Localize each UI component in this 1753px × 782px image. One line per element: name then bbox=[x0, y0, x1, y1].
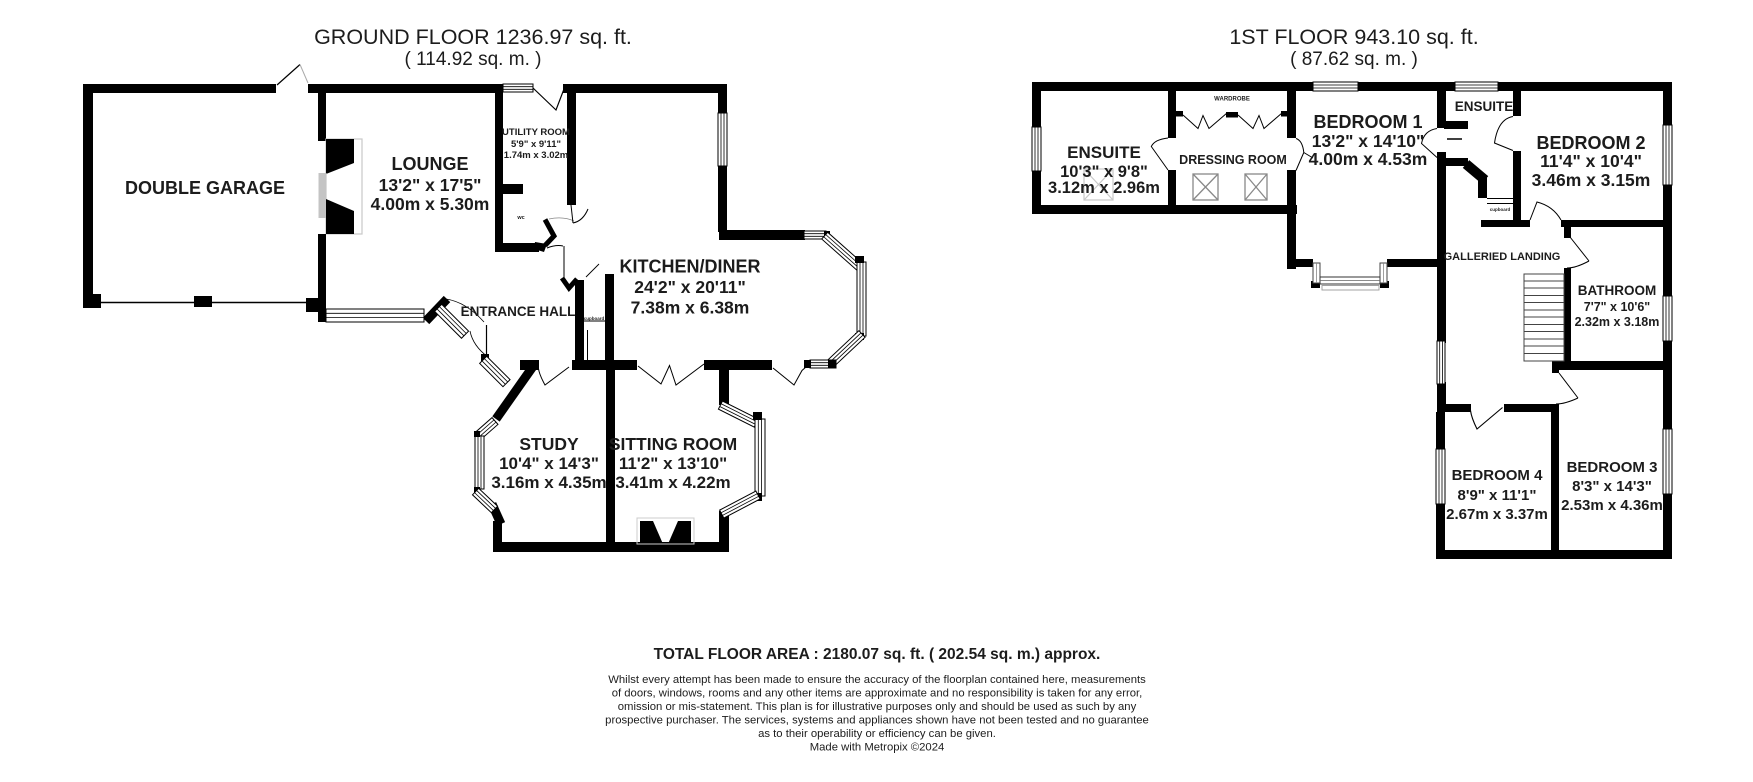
svg-text:BEDROOM 4: BEDROOM 4 bbox=[1452, 467, 1544, 484]
svg-text:STUDY: STUDY bbox=[519, 434, 579, 454]
svg-text:Whilst every attempt has been: Whilst every attempt has been made to en… bbox=[608, 674, 1146, 686]
svg-text:as to their operability or eff: as to their operability or efficiency ca… bbox=[758, 728, 996, 740]
svg-text:11'4" x 10'4": 11'4" x 10'4" bbox=[1540, 151, 1642, 171]
svg-text:DOUBLE GARAGE: DOUBLE GARAGE bbox=[125, 178, 285, 198]
svg-text:WARDROBE: WARDROBE bbox=[1214, 97, 1250, 103]
svg-text:wc: wc bbox=[516, 215, 524, 221]
svg-text:ENTRANCE HALL: ENTRANCE HALL bbox=[461, 304, 576, 319]
svg-text:BATHROOM: BATHROOM bbox=[1578, 283, 1657, 298]
svg-text:ENSUITE: ENSUITE bbox=[1455, 99, 1514, 114]
svg-text:10'4" x 14'3": 10'4" x 14'3" bbox=[499, 454, 599, 473]
svg-text:omission or mis-statement. Thi: omission or mis-statement. This plan is … bbox=[618, 701, 1137, 713]
svg-text:KITCHEN/DINER: KITCHEN/DINER bbox=[619, 257, 760, 277]
svg-text:11'2" x 13'10": 11'2" x 13'10" bbox=[619, 454, 727, 473]
svg-text:1ST FLOOR 943.10 sq. ft.: 1ST FLOOR 943.10 sq. ft. bbox=[1229, 25, 1478, 49]
svg-text:2.32m x 3.18m: 2.32m x 3.18m bbox=[1575, 315, 1660, 329]
svg-text:13'2" x 14'10": 13'2" x 14'10" bbox=[1312, 131, 1425, 151]
svg-text:UTILITY ROOM: UTILITY ROOM bbox=[502, 127, 570, 138]
svg-text:of doors, windows, rooms and a: of doors, windows, rooms and any other i… bbox=[612, 688, 1143, 700]
svg-text:4.00m x 4.53m: 4.00m x 4.53m bbox=[1309, 149, 1428, 169]
svg-text:BEDROOM 2: BEDROOM 2 bbox=[1536, 133, 1645, 153]
svg-text:8'9" x 11'1": 8'9" x 11'1" bbox=[1458, 487, 1537, 504]
svg-text:7.38m x 6.38m: 7.38m x 6.38m bbox=[631, 298, 750, 318]
svg-text:5'9" x 9'11": 5'9" x 9'11" bbox=[511, 139, 561, 150]
svg-text:3.46m x 3.15m: 3.46m x 3.15m bbox=[1532, 170, 1651, 190]
svg-text:3.41m x 4.22m: 3.41m x 4.22m bbox=[615, 473, 730, 492]
svg-text:Made with Metropix ©2024: Made with Metropix ©2024 bbox=[810, 742, 945, 754]
svg-text:8'3" x 14'3": 8'3" x 14'3" bbox=[1572, 478, 1652, 495]
svg-text:3.16m x 4.35m: 3.16m x 4.35m bbox=[491, 473, 606, 492]
svg-text:cupboard: cupboard bbox=[584, 316, 605, 321]
svg-text:DRESSING ROOM: DRESSING ROOM bbox=[1179, 153, 1287, 167]
svg-text:TOTAL FLOOR AREA : 2180.07 sq.: TOTAL FLOOR AREA : 2180.07 sq. ft. ( 202… bbox=[654, 646, 1101, 663]
svg-text:prospective purchaser. The ser: prospective purchaser. The services, sys… bbox=[605, 715, 1149, 727]
svg-text:7'7" x 10'6": 7'7" x 10'6" bbox=[1584, 300, 1651, 314]
svg-text:13'2" x 17'5": 13'2" x 17'5" bbox=[379, 175, 482, 195]
svg-text:2.67m x 3.37m: 2.67m x 3.37m bbox=[1446, 506, 1548, 523]
svg-text:GROUND FLOOR 1236.97 sq. ft.: GROUND FLOOR 1236.97 sq. ft. bbox=[314, 25, 632, 49]
svg-text:BEDROOM 1: BEDROOM 1 bbox=[1313, 112, 1422, 132]
svg-text:( 87.62 sq. m. ): ( 87.62 sq. m. ) bbox=[1290, 49, 1418, 70]
svg-text:24'2" x 20'11": 24'2" x 20'11" bbox=[634, 277, 746, 297]
svg-text:ENSUITE: ENSUITE bbox=[1067, 143, 1141, 162]
svg-text:SITTING ROOM: SITTING ROOM bbox=[609, 434, 737, 454]
svg-text:GALLERIED LANDING: GALLERIED LANDING bbox=[1444, 251, 1561, 263]
svg-text:4.00m x 5.30m: 4.00m x 5.30m bbox=[371, 194, 490, 214]
svg-text:1.74m x 3.02m: 1.74m x 3.02m bbox=[504, 150, 568, 161]
svg-text:( 114.92 sq. m. ): ( 114.92 sq. m. ) bbox=[405, 49, 542, 70]
svg-text:LOUNGE: LOUNGE bbox=[391, 154, 468, 174]
svg-text:cupboard: cupboard bbox=[1490, 207, 1511, 212]
svg-text:3.12m x 2.96m: 3.12m x 2.96m bbox=[1048, 179, 1160, 197]
svg-text:BEDROOM 3: BEDROOM 3 bbox=[1567, 459, 1658, 476]
svg-text:2.53m x 4.36m: 2.53m x 4.36m bbox=[1561, 497, 1663, 514]
